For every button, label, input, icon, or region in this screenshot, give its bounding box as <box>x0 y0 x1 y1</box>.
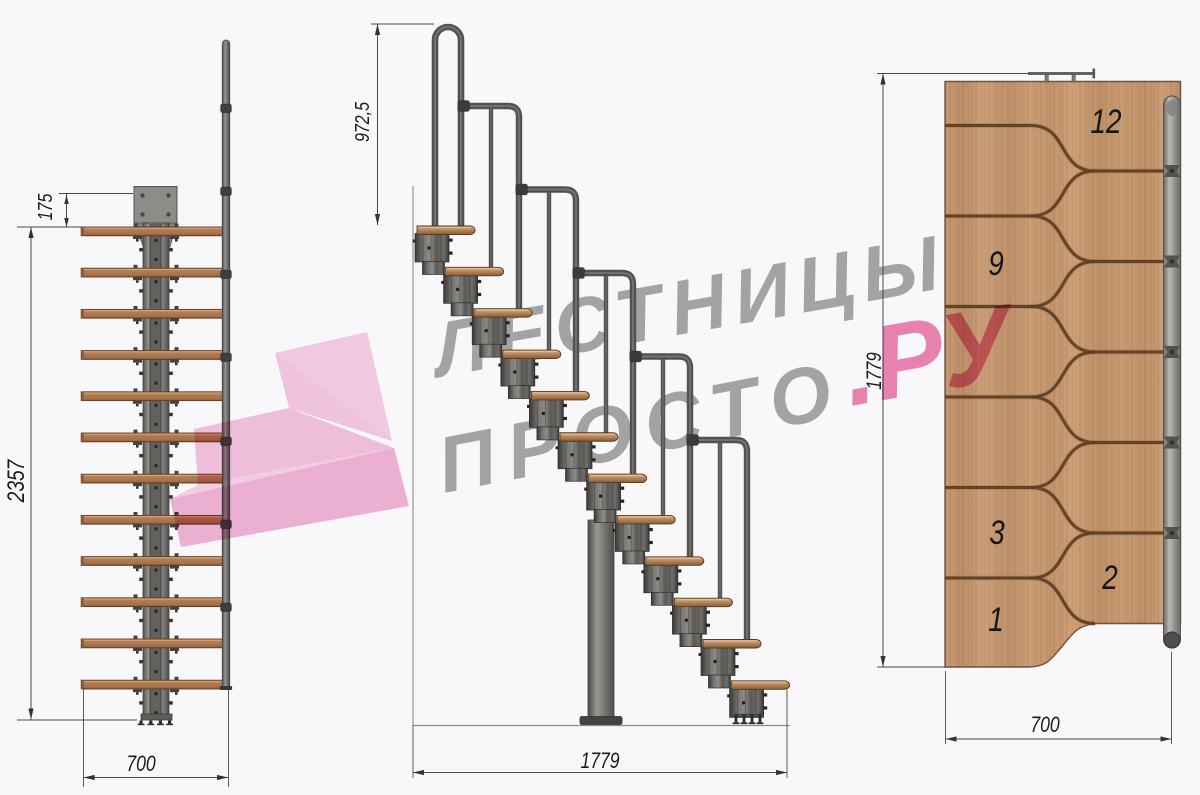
svg-text:700: 700 <box>1030 713 1059 737</box>
svg-text:175: 175 <box>34 193 56 221</box>
svg-text:12: 12 <box>1090 102 1121 140</box>
svg-text:700: 700 <box>126 752 155 776</box>
svg-text:972,5: 972,5 <box>351 101 373 142</box>
svg-text:2: 2 <box>1101 558 1117 596</box>
svg-text:3: 3 <box>989 513 1005 551</box>
svg-text:1779: 1779 <box>580 749 619 773</box>
svg-text:2357: 2357 <box>2 459 30 503</box>
svg-text:1: 1 <box>988 600 1004 638</box>
svg-text:9: 9 <box>988 244 1004 282</box>
